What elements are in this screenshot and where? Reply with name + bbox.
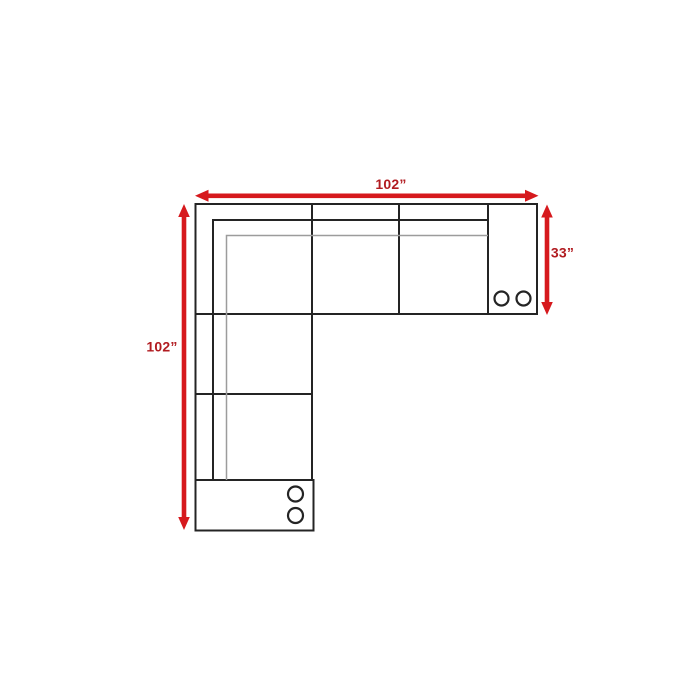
arrow-head-up-icon (178, 204, 190, 217)
arrow-head-down-icon (541, 302, 553, 315)
arrow-shaft (207, 194, 527, 199)
cupholder-icon (517, 292, 531, 306)
left-height-arrow (178, 204, 190, 530)
seat-cushion-light-line (227, 236, 489, 481)
arrow-head-up-icon (541, 205, 553, 218)
arrow-head-left-icon (195, 190, 209, 202)
cupholder-icon (288, 508, 303, 523)
arrow-shaft (182, 216, 187, 519)
arrow-head-right-icon (525, 190, 539, 202)
sofa-outline-group (196, 204, 538, 531)
sofa-dimension-diagram: 102” 102” 33” (0, 0, 700, 700)
top-width-label: 102” (375, 176, 406, 192)
cupholder-icon (495, 292, 509, 306)
arrow-shaft (545, 216, 550, 303)
sofa-dimension-diagram-page: 102” 102” 33” (0, 0, 700, 700)
backrest-inner-line (213, 220, 488, 480)
cupholder-icon (288, 487, 303, 502)
left-height-label: 102” (146, 339, 177, 355)
right-depth-label: 33” (551, 245, 574, 261)
arrow-head-down-icon (178, 517, 190, 530)
top-width-arrow (195, 190, 539, 202)
